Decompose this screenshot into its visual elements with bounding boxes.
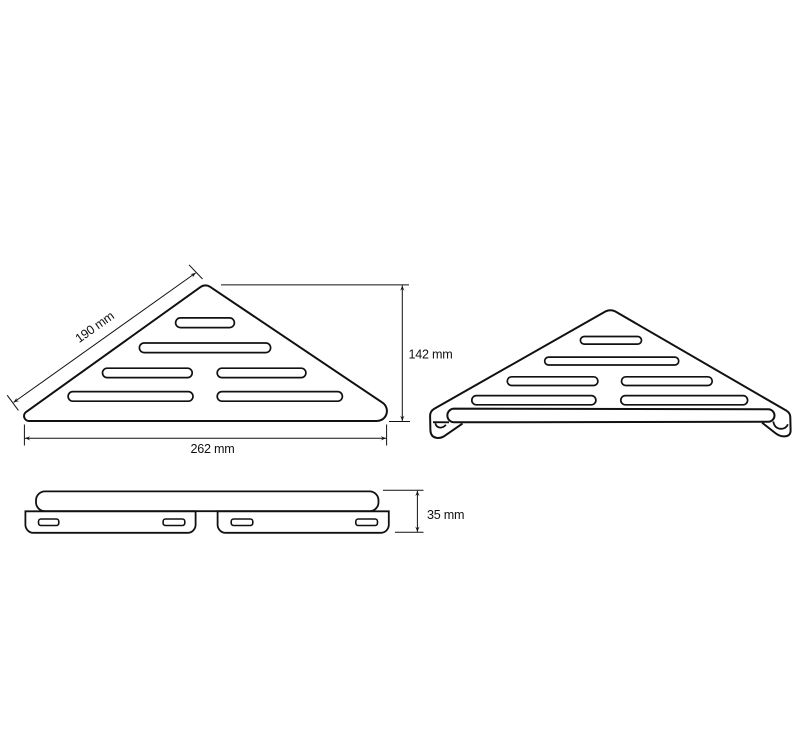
- svg-text:35 mm: 35 mm: [427, 508, 464, 522]
- svg-text:262 mm: 262 mm: [191, 442, 235, 456]
- svg-text:142 mm: 142 mm: [409, 348, 453, 362]
